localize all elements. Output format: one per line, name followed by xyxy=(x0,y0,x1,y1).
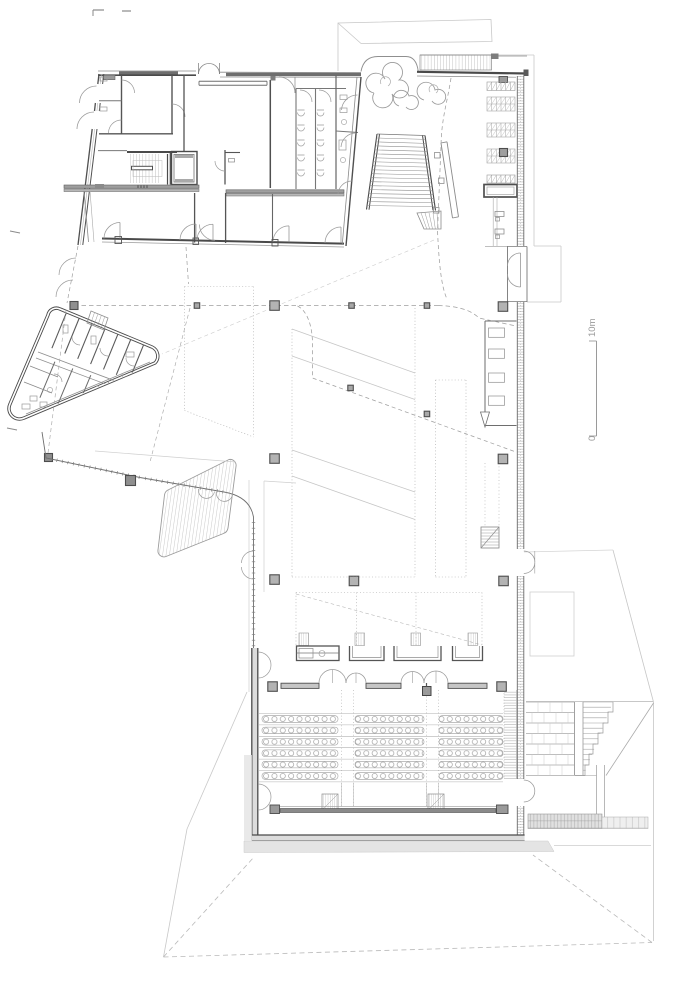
svg-text:0: 0 xyxy=(587,436,598,441)
svg-text:10m: 10m xyxy=(587,318,598,337)
